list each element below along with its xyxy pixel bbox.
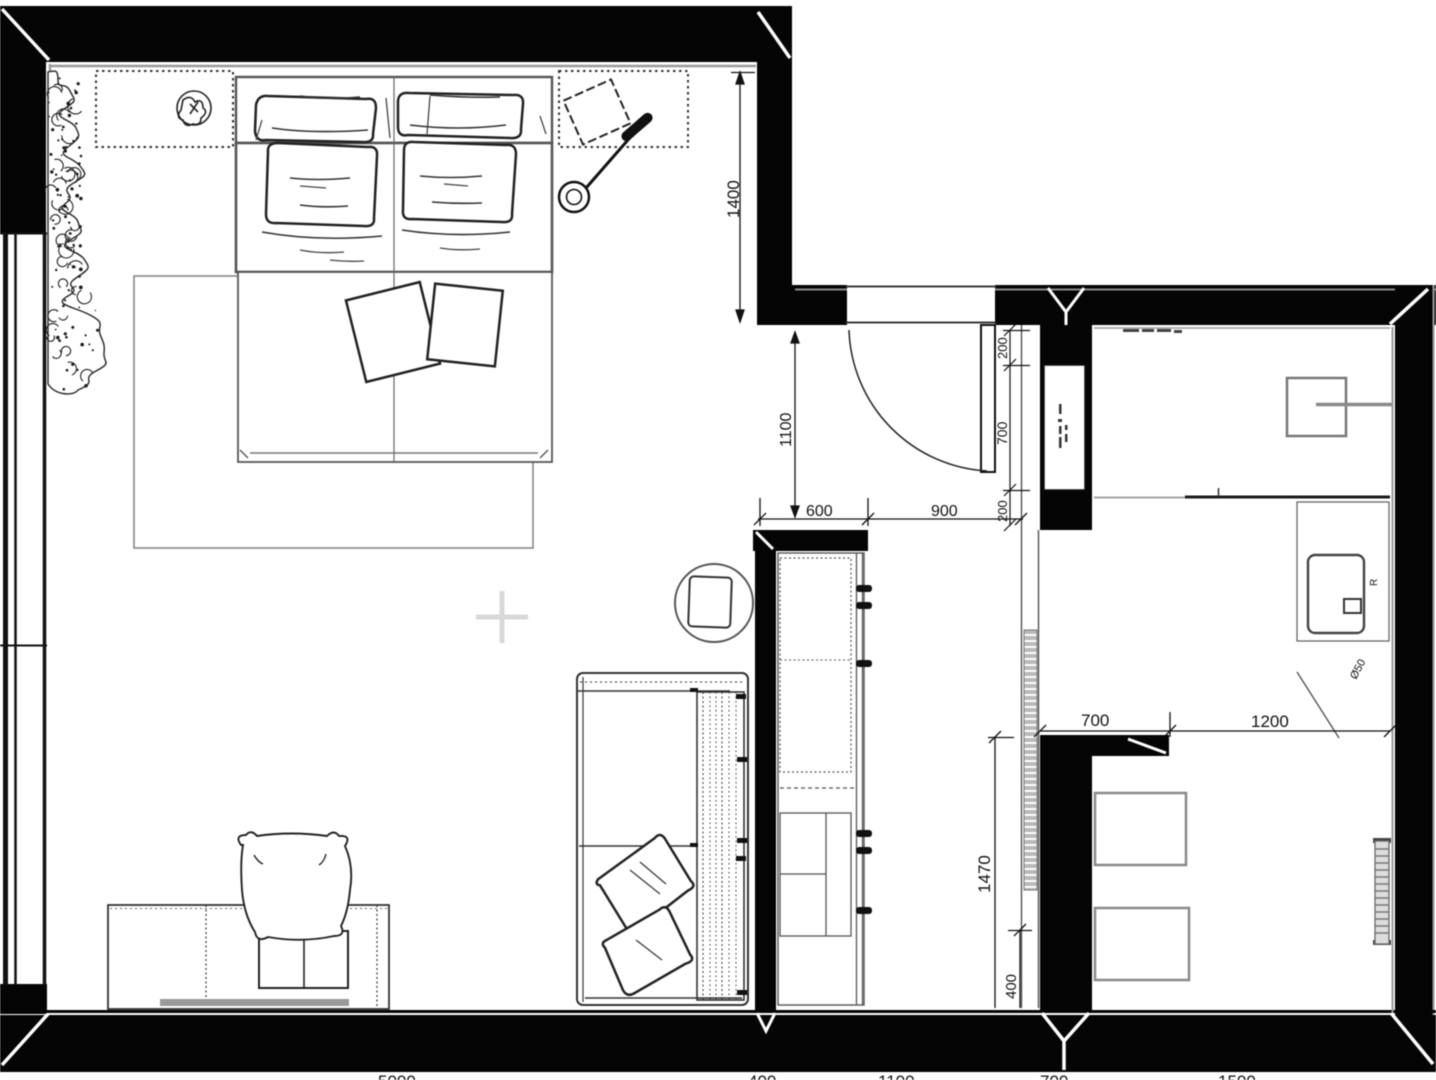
svg-text:1100: 1100 bbox=[778, 412, 795, 447]
svg-text:5000: 5000 bbox=[378, 1072, 416, 1080]
svg-text:1100: 1100 bbox=[878, 1072, 915, 1080]
svg-text:700: 700 bbox=[1040, 1072, 1068, 1080]
svg-text:1400: 1400 bbox=[724, 180, 743, 218]
svg-text:R: R bbox=[1369, 579, 1380, 586]
svg-text:600: 600 bbox=[806, 503, 833, 520]
svg-text:700: 700 bbox=[994, 421, 1010, 445]
svg-text:900: 900 bbox=[931, 503, 958, 520]
svg-text:1470: 1470 bbox=[975, 855, 994, 893]
svg-text:1500: 1500 bbox=[1218, 1072, 1256, 1080]
svg-text:200: 200 bbox=[995, 337, 1010, 359]
svg-text:200: 200 bbox=[995, 500, 1010, 522]
svg-text:400: 400 bbox=[748, 1072, 776, 1080]
svg-text:400: 400 bbox=[1003, 974, 1020, 999]
svg-text:700: 700 bbox=[1081, 711, 1109, 730]
svg-text:1200: 1200 bbox=[1251, 712, 1289, 731]
